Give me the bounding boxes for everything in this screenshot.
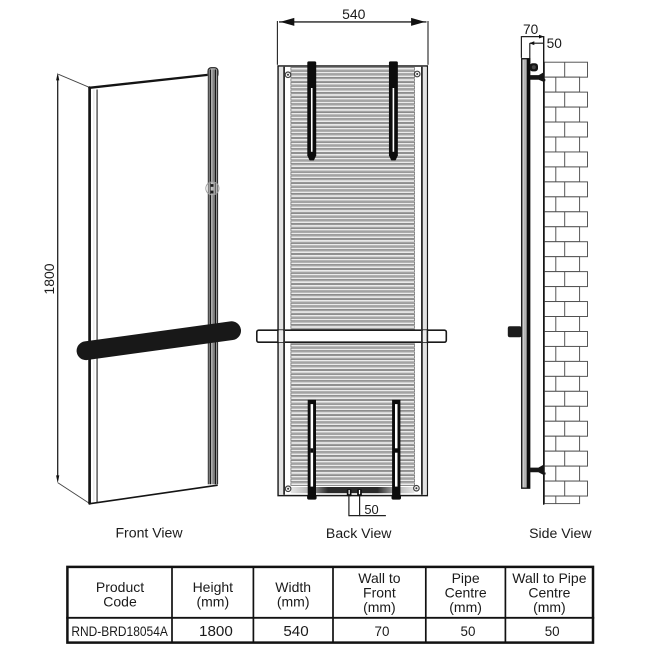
- svg-text:50: 50: [461, 624, 476, 639]
- svg-text:Front View: Front View: [115, 525, 183, 541]
- svg-text:540: 540: [283, 623, 308, 640]
- svg-text:70: 70: [375, 624, 390, 639]
- svg-text:Side View: Side View: [529, 525, 592, 541]
- svg-text:(mm): (mm): [363, 599, 396, 615]
- svg-text:1800: 1800: [41, 263, 57, 294]
- svg-text:50: 50: [364, 502, 378, 517]
- svg-text:50: 50: [545, 624, 560, 639]
- svg-text:Back View: Back View: [326, 525, 392, 541]
- svg-text:(mm): (mm): [533, 599, 566, 615]
- svg-text:RND-BRD18054A: RND-BRD18054A: [71, 624, 168, 639]
- svg-text:Code: Code: [103, 593, 137, 609]
- svg-text:(mm): (mm): [196, 593, 229, 609]
- svg-text:1800: 1800: [199, 623, 233, 640]
- svg-text:540: 540: [342, 6, 366, 22]
- svg-text:70: 70: [523, 22, 539, 37]
- svg-text:(mm): (mm): [449, 599, 482, 615]
- svg-text:(mm): (mm): [277, 593, 310, 609]
- svg-text:50: 50: [547, 36, 563, 51]
